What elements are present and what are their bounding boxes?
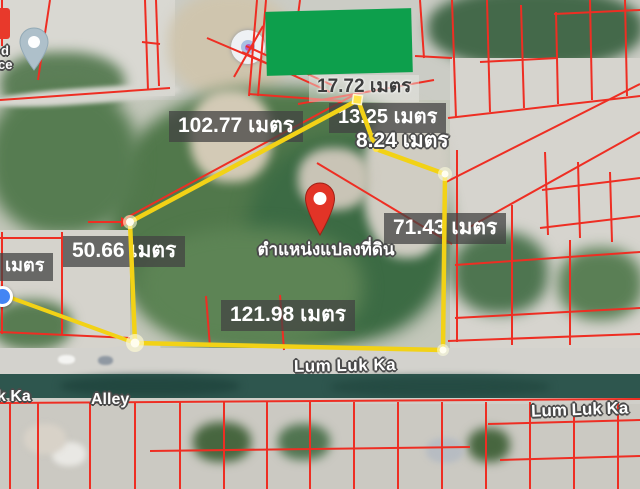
road-label-bottom-right: Lum Luk Ka [531, 398, 629, 421]
corner-text-line2: ce [0, 57, 12, 72]
vertex-node-southeast [440, 347, 447, 354]
plot-tie-line [6, 296, 135, 343]
red-poi-badge-icon [0, 8, 10, 39]
measure-label-northeast-lower: 8.24 เมตร [356, 124, 449, 157]
pin-caption-label: ตำแหน่งแปลงที่ดิน [257, 236, 394, 263]
vertex-node-west [126, 218, 134, 226]
vertex-node-southwest [131, 339, 140, 348]
gray-blue-map-pin-icon[interactable] [18, 27, 50, 71]
vertex-node-north [352, 94, 362, 104]
corner-text-line1: d [1, 43, 9, 58]
road-label-bottom-left-partial: k Ka [0, 388, 31, 406]
road-label-main: Lum Luk Ka [294, 355, 397, 377]
vertex-node-east [442, 171, 449, 178]
map-canvas[interactable]: 17.72 เมตร 102.77 เมตร 13.25 เมตร 71.43 … [0, 0, 640, 489]
red-map-pin-icon[interactable] [302, 181, 338, 237]
road-label-alley: Alley [91, 391, 129, 409]
